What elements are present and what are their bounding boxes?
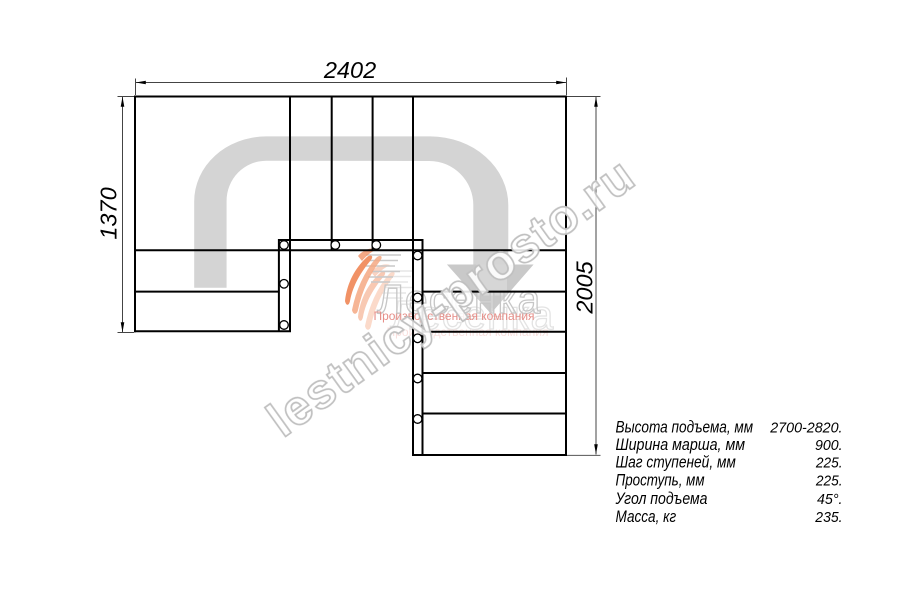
svg-text:225.: 225. [815,474,843,490]
svg-text:Высота подъема, мм: Высота подъема, мм [616,419,754,437]
svg-text:900.: 900. [815,438,843,454]
svg-text:Шаг ступеней, мм: Шаг ступеней, мм [616,454,736,472]
svg-text:2700-2820.: 2700-2820. [769,421,842,437]
svg-text:235.: 235. [814,510,842,526]
svg-text:2402: 2402 [323,57,376,83]
svg-text:Угол подъема: Угол подъема [615,490,708,508]
svg-text:Ширина марша, мм: Ширина марша, мм [616,436,746,454]
svg-text:Проступь, мм: Проступь, мм [616,472,705,490]
svg-text:Масса, кг: Масса, кг [616,508,677,526]
svg-text:1370: 1370 [96,187,122,239]
svg-text:225.: 225. [815,456,843,472]
svg-text:45°.: 45°. [817,492,843,508]
svg-text:2005: 2005 [572,260,598,314]
